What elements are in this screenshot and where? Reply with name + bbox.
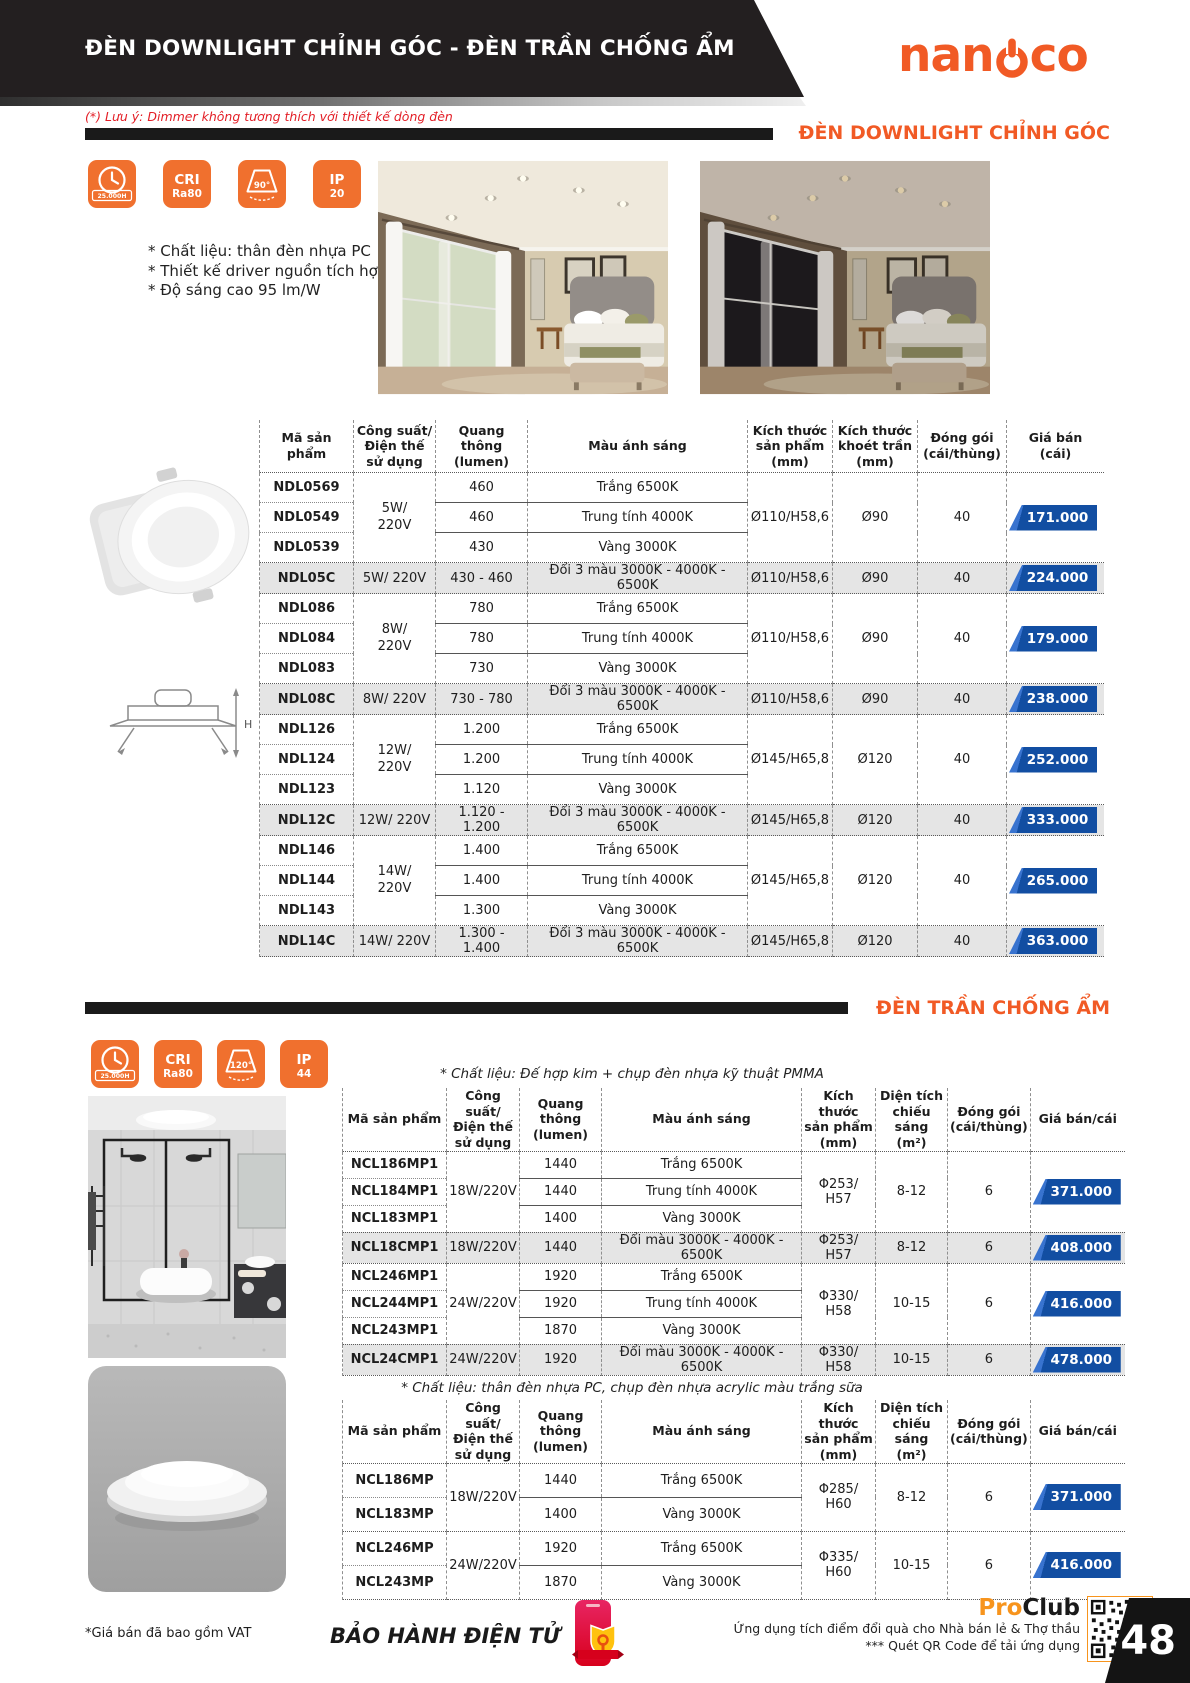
pack-cell: 6 (948, 1263, 1031, 1344)
ip-rating-icon: IP 44 (280, 1040, 328, 1088)
lumen-cell: 1.120 - 1.200 (436, 805, 528, 836)
pack-cell: 40 (918, 594, 1007, 684)
col-header-pack: Đóng gói (cái/thùng) (948, 1400, 1031, 1463)
product-code: NCL184MP1 (343, 1178, 447, 1205)
lumen-cell: 1440 (520, 1178, 602, 1205)
lumen-cell: 730 (436, 654, 528, 684)
feature-line: * Độ sáng cao 95 lm/W (148, 281, 387, 301)
table-header-row: Mã sản phẩm Công suất/ Điện thế sử dụng … (343, 1400, 1125, 1463)
ceiling-light-product-photo (88, 1366, 286, 1592)
section1-spec-icons: 25.000H CRI Ra80 90° IP 20 (88, 160, 361, 208)
price-cell: 371.000 (1030, 1463, 1125, 1531)
price-badge: 416.000 (1033, 1552, 1121, 1578)
size-cell: Φ330/ H58 (802, 1263, 876, 1344)
lumen-cell: 1870 (520, 1565, 602, 1599)
lumen-cell: 460 (436, 503, 528, 533)
lumen-cell: 1920 (520, 1263, 602, 1290)
price-badge: 265.000 (1009, 868, 1097, 894)
downlight-dimension-drawing: H (98, 686, 253, 771)
section2-spec-icons: 25.000H CRI Ra80 120° IP 44 (91, 1040, 328, 1088)
nanoco-logo: nan co (898, 32, 1088, 79)
col-header-power: Công suất/ Điện thế sử dụng (447, 1400, 520, 1463)
col-header-pack: Đóng gói (cái/thùng) (948, 1088, 1031, 1151)
col-header-price: Giá bán/cái (1030, 1400, 1125, 1463)
price-badge: 478.000 (1033, 1347, 1121, 1373)
size-cell: Ø145/H65,8 (748, 715, 833, 805)
header-gradient-strip (0, 97, 806, 106)
section2-title: ĐÈN TRẦN CHỐNG ẨM (876, 997, 1110, 1019)
area-cell: 10-15 (876, 1263, 948, 1344)
product-code: NCL246MP1 (343, 1263, 447, 1290)
color-cell: Trắng 6500K (528, 715, 748, 745)
price-cell: 371.000 (1030, 1151, 1125, 1232)
table-row: NDL126 12W/ 220V 1.200 Trắng 6500K Ø145/… (260, 715, 1105, 745)
cutout-cell: Ø120 (833, 926, 918, 957)
svg-text:90°: 90° (254, 181, 270, 191)
size-cell: Φ253/ H57 (802, 1151, 876, 1232)
proclub-logo: ProClub (734, 1596, 1080, 1620)
power-cell: 5W/ 220V (354, 473, 436, 563)
product-code: NCL24CMP1 (343, 1344, 447, 1375)
pack-cell: 6 (948, 1463, 1031, 1531)
lumen-cell: 430 - 460 (436, 563, 528, 594)
size-cell: Ø110/H58,6 (748, 594, 833, 684)
product-code: NCL246MP (343, 1531, 447, 1565)
table-header-row: Mã sản phẩm Công suất/ Điện thế sử dụng … (343, 1088, 1125, 1151)
product-code: NCL18CMP1 (343, 1232, 447, 1263)
lumen-cell: 430 (436, 533, 528, 563)
product-code: NCL183MP1 (343, 1205, 447, 1232)
price-cell: 416.000 (1030, 1263, 1125, 1344)
product-code: NDL0539 (260, 533, 354, 563)
color-cell: Trắng 6500K (528, 836, 748, 866)
color-cell: Trung tính 4000K (602, 1290, 802, 1317)
color-cell: Trung tính 4000K (528, 745, 748, 775)
price-badge: 371.000 (1033, 1179, 1121, 1205)
product-code: NDL0569 (260, 473, 354, 503)
pack-cell: 40 (918, 473, 1007, 563)
catalog-page: ĐÈN DOWNLIGHT CHỈNH GÓC - ĐÈN TRẦN CHỐNG… (0, 0, 1190, 1683)
page-number: 48 (1120, 1618, 1176, 1664)
lumen-cell: 1.400 (436, 836, 528, 866)
lumen-cell: 1.120 (436, 775, 528, 805)
col-header-lumen: Quang thông (lumen) (520, 1088, 602, 1151)
product-code: NDL146 (260, 836, 354, 866)
product-code: NDL0549 (260, 503, 354, 533)
price-badge: 179.000 (1009, 626, 1097, 652)
table-row: NDL12C 12W/ 220V 1.120 - 1.200 Đổi 3 màu… (260, 805, 1105, 836)
area-cell: 8-12 (876, 1232, 948, 1263)
logo-text-post: co (1030, 32, 1088, 79)
col-header-power: Công suất/ Điện thế sử dụng (354, 420, 436, 473)
color-cell: Vàng 3000K (528, 533, 748, 563)
price-cell: 408.000 (1030, 1232, 1125, 1263)
proclub-line2: *** Quét QR Code để tải ứng dụng (734, 1637, 1080, 1654)
color-cell: Đổi 3 màu 3000K - 4000K - 6500K (528, 563, 748, 594)
col-header-code: Mã sản phẩm (343, 1400, 447, 1463)
price-badge: 224.000 (1009, 565, 1097, 591)
power-button-icon (995, 38, 1029, 79)
price-cell: 333.000 (1007, 805, 1105, 836)
power-cell: 5W/ 220V (354, 563, 436, 594)
product-code: NDL126 (260, 715, 354, 745)
col-header-price: Giá bán/cái (1030, 1088, 1125, 1151)
table-row: NDL08C 8W/ 220V 730 - 780 Đổi 3 màu 3000… (260, 684, 1105, 715)
color-cell: Trung tính 4000K (528, 866, 748, 896)
product-code: NDL12C (260, 805, 354, 836)
lumen-cell: 460 (436, 473, 528, 503)
color-cell: Đổi 3 màu 3000K - 4000K - 6500K (528, 805, 748, 836)
size-cell: Ø110/H58,6 (748, 563, 833, 594)
pack-cell: 40 (918, 684, 1007, 715)
price-cell: 416.000 (1030, 1531, 1125, 1599)
power-cell: 24W/220V (447, 1263, 520, 1344)
ceiling-light-mp1-table: Mã sản phẩm Công suất/ Điện thế sử dụng … (342, 1088, 1125, 1376)
table-header-row: Mã sản phẩm Công suất/ Điện thế sử dụng … (260, 420, 1105, 473)
power-cell: 8W/ 220V (354, 684, 436, 715)
product-code: NCL243MP1 (343, 1317, 447, 1344)
power-cell: 18W/220V (447, 1463, 520, 1531)
pack-cell: 40 (918, 805, 1007, 836)
svg-text:CRI: CRI (174, 172, 199, 188)
price-badge: 333.000 (1009, 807, 1097, 833)
area-cell: 10-15 (876, 1344, 948, 1375)
color-cell: Đổi màu 3000K - 4000K - 6500K (602, 1232, 802, 1263)
lumen-cell: 780 (436, 594, 528, 624)
size-cell: Φ285/ H60 (802, 1463, 876, 1531)
svg-text:25.000H: 25.000H (97, 193, 126, 200)
e-warranty-label: BẢO HÀNH ĐIỆN TỬ (330, 1624, 560, 1648)
lumen-cell: 1440 (520, 1232, 602, 1263)
product-code: NDL05C (260, 563, 354, 594)
table-row: NCL18CMP1 18W/220V 1440 Đổi màu 3000K - … (343, 1232, 1125, 1263)
power-cell: 14W/ 220V (354, 836, 436, 926)
table-row: NCL186MP 18W/220V 1440 Trắng 6500K Φ285/… (343, 1463, 1125, 1497)
pack-cell: 6 (948, 1531, 1031, 1599)
table-row: NDL05C 5W/ 220V 430 - 460 Đổi 3 màu 3000… (260, 563, 1105, 594)
color-cell: Vàng 3000K (528, 654, 748, 684)
pack-cell: 6 (948, 1151, 1031, 1232)
table-row: NCL246MP1 24W/220V 1920 Trắng 6500K Φ330… (343, 1263, 1125, 1290)
product-code: NDL124 (260, 745, 354, 775)
power-cell: 14W/ 220V (354, 926, 436, 957)
beam-angle-icon: 120° (217, 1040, 265, 1088)
lumen-cell: 1400 (520, 1497, 602, 1531)
lumen-cell: 1920 (520, 1531, 602, 1565)
cri-icon: CRI Ra80 (154, 1040, 202, 1088)
material-note-pc: * Chất liệu: thân đèn nhựa PC, chụp đèn … (342, 1380, 922, 1396)
size-cell: Ø145/H65,8 (748, 926, 833, 957)
svg-text:Ra80: Ra80 (163, 1068, 193, 1080)
product-code: NCL183MP (343, 1497, 447, 1531)
col-header-size: Kích thước sản phẩm (mm) (748, 420, 833, 473)
bedroom-photo-night (700, 158, 990, 397)
cutout-cell: Ø120 (833, 715, 918, 805)
table-row: NCL24CMP1 24W/220V 1920 Đổi màu 3000K - … (343, 1344, 1125, 1375)
col-header-code: Mã sản phẩm (343, 1088, 447, 1151)
downlight-products-table: Mã sản phẩm Công suất/ Điện thế sử dụng … (259, 420, 1104, 957)
table-row: NDL146 14W/ 220V 1.400 Trắng 6500K Ø145/… (260, 836, 1105, 866)
cutout-cell: Ø90 (833, 563, 918, 594)
price-cell: 238.000 (1007, 684, 1105, 715)
pack-cell: 40 (918, 715, 1007, 805)
section1-title: ĐÈN DOWNLIGHT CHỈNH GÓC (799, 122, 1110, 144)
pack-cell: 6 (948, 1344, 1031, 1375)
svg-text:IP: IP (330, 172, 345, 188)
bedroom-photo-day (378, 158, 668, 397)
vat-note: *Giá bán đã bao gồm VAT (85, 1626, 251, 1641)
svg-text:CRI: CRI (165, 1052, 190, 1068)
price-cell: 478.000 (1030, 1344, 1125, 1375)
price-cell: 363.000 (1007, 926, 1105, 957)
product-code: NDL08C (260, 684, 354, 715)
col-header-area: Diện tích chiếu sáng (m²) (876, 1088, 948, 1151)
lumen-cell: 1.300 (436, 896, 528, 926)
logo-text-pre: nan (898, 32, 994, 79)
product-code: NDL14C (260, 926, 354, 957)
color-cell: Trắng 6500K (602, 1151, 802, 1178)
price-badge: 363.000 (1009, 928, 1097, 954)
size-cell: Ø110/H58,6 (748, 473, 833, 563)
ceiling-light-mp-table: Mã sản phẩm Công suất/ Điện thế sử dụng … (342, 1400, 1125, 1600)
color-cell: Vàng 3000K (528, 896, 748, 926)
area-cell: 10-15 (876, 1531, 948, 1599)
cutout-cell: Ø90 (833, 594, 918, 684)
col-header-color: Màu ánh sáng (528, 420, 748, 473)
size-cell: Φ335/ H60 (802, 1531, 876, 1599)
cri-icon: CRI Ra80 (163, 160, 211, 208)
col-header-size: Kích thước sản phẩm (mm) (802, 1400, 876, 1463)
proclub-line1: Ứng dụng tích điểm đổi quà cho Nhà bán l… (734, 1620, 1080, 1637)
lumen-cell: 1440 (520, 1463, 602, 1497)
col-header-cutout: Kích thước khoét trần (mm) (833, 420, 918, 473)
lumen-cell: 1920 (520, 1344, 602, 1375)
color-cell: Trắng 6500K (528, 594, 748, 624)
power-cell: 12W/ 220V (354, 715, 436, 805)
product-code: NCL186MP1 (343, 1151, 447, 1178)
page-title: ĐÈN DOWNLIGHT CHỈNH GÓC - ĐÈN TRẦN CHỐNG… (85, 0, 735, 97)
power-cell: 12W/ 220V (354, 805, 436, 836)
power-cell: 24W/220V (447, 1344, 520, 1375)
color-cell: Vàng 3000K (602, 1205, 802, 1232)
col-header-pack: Đóng gói (cái/thùng) (918, 420, 1007, 473)
color-cell: Đổi 3 màu 3000K - 4000K - 6500K (528, 926, 748, 957)
price-cell: 179.000 (1007, 594, 1105, 684)
col-header-lumen: Quang thông (lumen) (436, 420, 528, 473)
product-code: NCL244MP1 (343, 1290, 447, 1317)
material-note-pmma: * Chất liệu: Đế hợp kim + chụp đèn nhựa … (342, 1066, 922, 1082)
price-badge: 408.000 (1033, 1235, 1121, 1261)
dimmer-note: (*) Lưu ý: Dimmer không tương thích với … (85, 109, 453, 124)
product-code: NDL083 (260, 654, 354, 684)
power-cell: 24W/220V (447, 1531, 520, 1599)
color-cell: Trắng 6500K (602, 1263, 802, 1290)
lifetime-icon: 25.000H (88, 160, 136, 208)
power-cell: 18W/220V (447, 1151, 520, 1232)
area-cell: 8-12 (876, 1151, 948, 1232)
ip-rating-icon: IP 20 (313, 160, 361, 208)
product-code: NDL086 (260, 594, 354, 624)
lumen-cell: 1.200 (436, 745, 528, 775)
lumen-cell: 1.200 (436, 715, 528, 745)
col-header-color: Màu ánh sáng (602, 1088, 802, 1151)
price-cell: 265.000 (1007, 836, 1105, 926)
color-cell: Đổi 3 màu 3000K - 4000K - 6500K (528, 684, 748, 715)
lumen-cell: 1870 (520, 1317, 602, 1344)
size-cell: Φ253/ H57 (802, 1232, 876, 1263)
price-cell: 252.000 (1007, 715, 1105, 805)
cutout-cell: Ø120 (833, 805, 918, 836)
downlight-product-photo (84, 430, 259, 645)
cutout-cell: Ø90 (833, 684, 918, 715)
lifetime-icon: 25.000H (91, 1040, 139, 1088)
color-cell: Vàng 3000K (528, 775, 748, 805)
table-row: NCL246MP 24W/220V 1920 Trắng 6500K Φ335/… (343, 1531, 1125, 1565)
section1-features: * Chất liệu: thân đèn nhựa PC * Thiết kế… (148, 242, 387, 301)
power-cell: 18W/220V (447, 1232, 520, 1263)
cutout-cell: Ø90 (833, 473, 918, 563)
size-cell: Ø145/H65,8 (748, 805, 833, 836)
svg-text:Ra80: Ra80 (172, 188, 202, 200)
bathroom-photo (88, 1096, 286, 1358)
size-cell: Φ330/ H58 (802, 1344, 876, 1375)
color-cell: Vàng 3000K (602, 1317, 802, 1344)
feature-line: * Thiết kế driver nguồn tích hợp (148, 262, 387, 282)
col-header-code: Mã sản phẩm (260, 420, 354, 473)
product-code: NCL243MP (343, 1565, 447, 1599)
product-code: NDL123 (260, 775, 354, 805)
lumen-cell: 1920 (520, 1290, 602, 1317)
color-cell: Trung tính 4000K (528, 503, 748, 533)
product-code: NCL186MP (343, 1463, 447, 1497)
cutout-cell: Ø120 (833, 836, 918, 926)
feature-line: * Chất liệu: thân đèn nhựa PC (148, 242, 387, 262)
e-warranty-icon (572, 1598, 624, 1676)
col-header-lumen: Quang thông (lumen) (520, 1400, 602, 1463)
col-header-power: Công suất/ Điện thế sử dụng (447, 1088, 520, 1151)
lumen-cell: 1400 (520, 1205, 602, 1232)
divider-bar (85, 128, 773, 140)
price-badge: 371.000 (1033, 1484, 1121, 1510)
lumen-cell: 780 (436, 624, 528, 654)
power-cell: 8W/ 220V (354, 594, 436, 684)
col-header-color: Màu ánh sáng (602, 1400, 802, 1463)
color-cell: Trắng 6500K (602, 1531, 802, 1565)
area-cell: 8-12 (876, 1463, 948, 1531)
lumen-cell: 1.300 - 1.400 (436, 926, 528, 957)
price-badge: 238.000 (1009, 686, 1097, 712)
table-row: NDL086 8W/ 220V 780 Trắng 6500K Ø110/H58… (260, 594, 1105, 624)
col-header-size: Kích thước sản phẩm (mm) (802, 1088, 876, 1151)
proclub-block: ProClub Ứng dụng tích điểm đổi quà cho N… (734, 1596, 1080, 1654)
color-cell: Trắng 6500K (602, 1463, 802, 1497)
lumen-cell: 1.400 (436, 866, 528, 896)
color-cell: Vàng 3000K (602, 1497, 802, 1531)
color-cell: Vàng 3000K (602, 1565, 802, 1599)
color-cell: Đổi màu 3000K - 4000K - 6500K (602, 1344, 802, 1375)
pack-cell: 40 (918, 926, 1007, 957)
price-cell: 171.000 (1007, 473, 1105, 563)
price-badge: 416.000 (1033, 1291, 1121, 1317)
divider-bar (85, 1002, 848, 1014)
product-code: NDL143 (260, 896, 354, 926)
product-code: NDL144 (260, 866, 354, 896)
svg-text:20: 20 (330, 188, 345, 200)
pack-cell: 40 (918, 563, 1007, 594)
table-row: NDL0569 5W/ 220V 460 Trắng 6500K Ø110/H5… (260, 473, 1105, 503)
pack-cell: 6 (948, 1232, 1031, 1263)
svg-text:IP: IP (297, 1052, 312, 1068)
svg-text:120°: 120° (230, 1061, 252, 1071)
size-cell: Ø110/H58,6 (748, 684, 833, 715)
color-cell: Trắng 6500K (528, 473, 748, 503)
color-cell: Trung tính 4000K (528, 624, 748, 654)
svg-text:H: H (244, 718, 252, 731)
price-cell: 224.000 (1007, 563, 1105, 594)
product-code: NDL084 (260, 624, 354, 654)
pack-cell: 40 (918, 836, 1007, 926)
svg-text:44: 44 (297, 1068, 312, 1080)
table-row: NDL14C 14W/ 220V 1.300 - 1.400 Đổi 3 màu… (260, 926, 1105, 957)
beam-angle-icon: 90° (238, 160, 286, 208)
col-header-area: Diện tích chiếu sáng (m²) (876, 1400, 948, 1463)
lumen-cell: 730 - 780 (436, 684, 528, 715)
price-badge: 252.000 (1009, 747, 1097, 773)
table-row: NCL186MP1 18W/220V 1440 Trắng 6500K Φ253… (343, 1151, 1125, 1178)
col-header-price: Giá bán (cái) (1007, 420, 1105, 473)
lumen-cell: 1440 (520, 1151, 602, 1178)
size-cell: Ø145/H65,8 (748, 836, 833, 926)
color-cell: Trung tính 4000K (602, 1178, 802, 1205)
svg-text:25.000H: 25.000H (100, 1073, 129, 1080)
price-badge: 171.000 (1009, 505, 1097, 531)
